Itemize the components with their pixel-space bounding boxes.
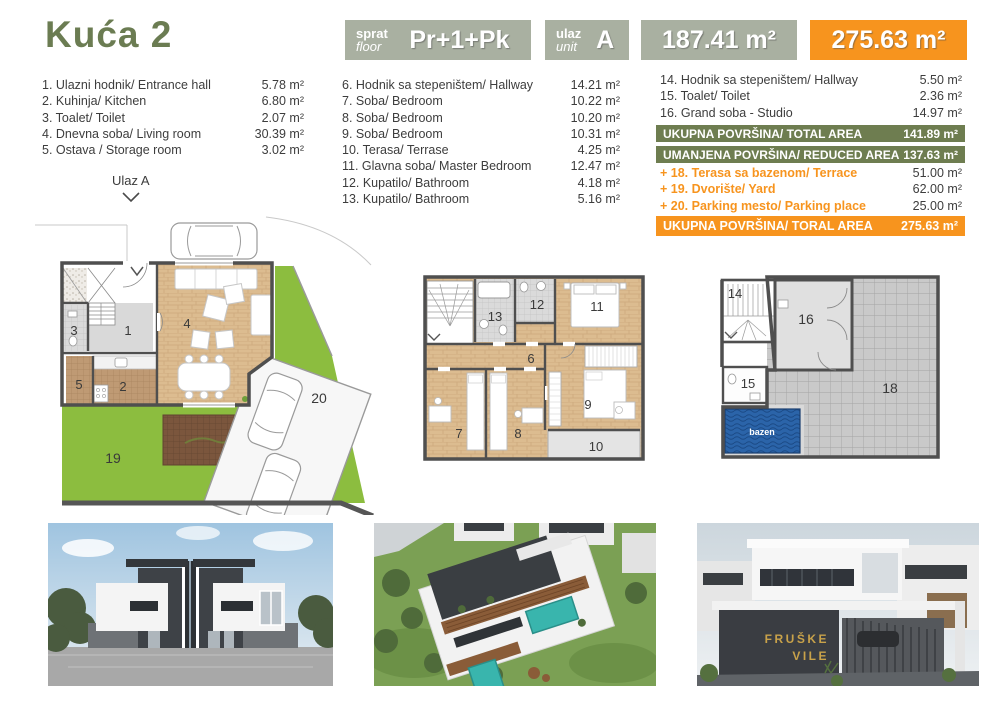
room-number: 10 — [589, 439, 603, 454]
room-area: 4.25 m² — [578, 143, 620, 157]
room-label: 2. Kuhinja/ Kitchen — [42, 94, 146, 108]
floor-box-labels: sprat floor — [345, 27, 388, 53]
extra-label: + 20. Parking mesto/ Parking place — [660, 199, 866, 213]
street-car-icon — [171, 223, 257, 259]
room-area: 2.07 m² — [262, 111, 304, 125]
room-number: 8 — [514, 426, 521, 441]
room-number: 6 — [527, 351, 534, 366]
room-area: 14.21 m² — [571, 78, 620, 92]
room-area: 4.18 m² — [578, 176, 620, 190]
room-row: 5. Ostava / Storage room3.02 m² — [42, 143, 304, 159]
sign-text-line2: VILE — [792, 649, 829, 663]
room-list-attic: 14. Hodnik sa stepeništem/ Hallway5.50 m… — [660, 73, 962, 122]
grand-total-bar-value: 275.63 m² — [901, 219, 958, 233]
pool: bazen — [721, 405, 804, 457]
room-number: 13 — [488, 309, 502, 324]
aerial-render — [374, 523, 656, 686]
room-number: 11 — [590, 299, 604, 314]
page-title: Kuća 2 — [45, 14, 172, 56]
sign-text-line1: FRUŠKE — [765, 631, 829, 646]
staircase — [427, 281, 473, 344]
room-number: 5 — [75, 377, 82, 392]
total-area-box: 275.63 m² — [810, 20, 967, 60]
room-row: 8. Soba/ Bedroom10.20 m² — [342, 111, 620, 127]
room-row: 14. Hodnik sa stepeništem/ Hallway5.50 m… — [660, 73, 962, 89]
room-label: 3. Toalet/ Toilet — [42, 111, 125, 125]
room-label: 8. Soba/ Bedroom — [342, 111, 443, 125]
total-area-bar-label: UKUPNA POVRŠINA/ TOTAL AREA — [663, 127, 862, 141]
entrance-label: Ulaz A — [112, 173, 150, 188]
room-label: 15. Toalet/ Toilet — [660, 89, 750, 103]
room-row: 10. Terasa/ Terrase4.25 m² — [342, 143, 620, 159]
extra-area: 25.00 m² — [913, 199, 962, 213]
room-area: 5.50 m² — [920, 73, 962, 87]
room-label: 10. Terasa/ Terrase — [342, 143, 449, 157]
room-label: 7. Soba/ Bedroom — [342, 94, 443, 108]
room-list-ground: 1. Ulazni hodnik/ Entrance hall5.78 m² 2… — [42, 78, 304, 159]
room-area: 12.47 m² — [571, 159, 620, 173]
photo-aerial-view — [374, 523, 656, 686]
floor-label-en: floor — [356, 40, 388, 53]
reduced-area-bar-value: 137.63 m² — [903, 148, 958, 162]
room-area: 5.16 m² — [578, 192, 620, 206]
total-area-bar: UKUPNA POVRŠINA/ TOTAL AREA 141.89 m² — [656, 125, 965, 142]
room-label: 16. Grand soba - Studio — [660, 106, 793, 120]
attic-floor-plan: bazen 14 15 16 18 — [698, 260, 996, 486]
room-area: 30.39 m² — [255, 127, 304, 141]
room-number: 14 — [728, 286, 742, 301]
room-row: 12. Kupatilo/ Bathroom4.18 m² — [342, 176, 620, 192]
extra-row: + 18. Terasa sa bazenom/ Terrace51.00 m² — [660, 166, 962, 182]
extra-areas-list: + 18. Terasa sa bazenom/ Terrace51.00 m²… — [660, 166, 962, 215]
room-row: 4. Dnevna soba/ Living room30.39 m² — [42, 127, 304, 143]
floor-value: Pr+1+Pk — [388, 26, 531, 55]
front-elevation-render — [48, 523, 333, 686]
room-label: 13. Kupatilo/ Bathroom — [342, 192, 469, 206]
photo-front-elevation — [48, 523, 333, 686]
room-area: 2.36 m² — [920, 89, 962, 103]
first-floor-plan: 13 12 11 6 7 8 9 10 — [398, 266, 670, 482]
room-row: 2. Kuhinja/ Kitchen6.80 m² — [42, 94, 304, 110]
bed-8 — [490, 373, 507, 450]
terrace-number: 18 — [882, 380, 898, 396]
room-label: 5. Ostava / Storage room — [42, 143, 182, 157]
room-number: 7 — [455, 426, 462, 441]
room-number: 15 — [741, 376, 755, 391]
extra-label: + 19. Dvorište/ Yard — [660, 182, 775, 196]
room-row: 9. Soba/ Bedroom10.31 m² — [342, 127, 620, 143]
brochure-page: Kuća 2 sprat floor Pr+1+Pk ulaz unit A 1… — [0, 0, 1000, 706]
room-label: 4. Dnevna soba/ Living room — [42, 127, 201, 141]
room-area: 10.20 m² — [571, 111, 620, 125]
total-area-value: 275.63 m² — [810, 26, 967, 55]
photo-entrance-gate: FRUŠKE VILE — [697, 523, 979, 686]
room-row: 1. Ulazni hodnik/ Entrance hall5.78 m² — [42, 78, 304, 94]
yard-number: 19 — [105, 450, 121, 466]
room-area: 14.97 m² — [913, 106, 962, 120]
extra-area: 62.00 m² — [913, 182, 962, 196]
room-label: 14. Hodnik sa stepeništem/ Hallway — [660, 73, 858, 87]
room-list-first-floor: 6. Hodnik sa stepeništem/ Hallway14.21 m… — [342, 78, 620, 208]
extra-row: + 19. Dvorište/ Yard62.00 m² — [660, 182, 962, 198]
room-label: 11. Glavna soba/ Master Bedroom — [342, 159, 531, 173]
room-row: 3. Toalet/ Toilet2.07 m² — [42, 111, 304, 127]
entrance-arrow-icon — [120, 190, 142, 204]
staircase — [88, 303, 115, 325]
unit-label-en: unit — [556, 40, 581, 53]
ground-floor-plan: 1 2 3 4 5 19 20 — [35, 213, 375, 515]
room-area: 10.22 m² — [571, 94, 620, 108]
floor-box: sprat floor Pr+1+Pk — [345, 20, 531, 60]
living-area-value: 187.41 m² — [641, 26, 797, 55]
room-area: 3.02 m² — [262, 143, 304, 157]
bed-7 — [467, 373, 484, 450]
unit-box-labels: ulaz unit — [545, 27, 581, 53]
room-number: 2 — [119, 379, 126, 394]
extra-label: + 18. Terasa sa bazenom/ Terrace — [660, 166, 857, 180]
room-label: 12. Kupatilo/ Bathroom — [342, 176, 469, 190]
room-label: 1. Ulazni hodnik/ Entrance hall — [42, 78, 211, 92]
room-number: 3 — [70, 323, 77, 338]
room-row: 6. Hodnik sa stepeništem/ Hallway14.21 m… — [342, 78, 620, 94]
room-row: 13. Kupatilo/ Bathroom5.16 m² — [342, 192, 620, 208]
reduced-area-bar: UMANJENA POVRŠINA/ REDUCED AREA 137.63 m… — [656, 146, 965, 163]
room-row: 7. Soba/ Bedroom10.22 m² — [342, 94, 620, 110]
room-number: 16 — [798, 311, 814, 327]
room-number: 1 — [124, 323, 131, 338]
room-row: 11. Glavna soba/ Master Bedroom12.47 m² — [342, 159, 620, 175]
parking-number: 20 — [311, 390, 327, 406]
pool-label: bazen — [749, 427, 775, 437]
total-area-bar-value: 141.89 m² — [903, 127, 958, 141]
extra-row: + 20. Parking mesto/ Parking place25.00 … — [660, 199, 962, 215]
entrance-render: FRUŠKE VILE — [697, 523, 979, 686]
living-area-box: 187.41 m² — [641, 20, 797, 60]
room-number: 9 — [584, 397, 591, 412]
reduced-area-bar-label: UMANJENA POVRŠINA/ REDUCED AREA — [663, 148, 899, 162]
room-area: 10.31 m² — [571, 127, 620, 141]
room-area: 5.78 m² — [262, 78, 304, 92]
room-label: 9. Soba/ Bedroom — [342, 127, 443, 141]
grand-total-bar: UKUPNA POVRŠINA/ TORAL AREA 275.63 m² — [656, 216, 965, 236]
unit-value: A — [581, 26, 629, 55]
unit-box: ulaz unit A — [545, 20, 629, 60]
extra-area: 51.00 m² — [913, 166, 962, 180]
room-area: 6.80 m² — [262, 94, 304, 108]
room-label: 6. Hodnik sa stepeništem/ Hallway — [342, 78, 533, 92]
grand-total-bar-label: UKUPNA POVRŠINA/ TORAL AREA — [663, 219, 873, 233]
room-number: 4 — [183, 316, 190, 331]
room-row: 15. Toalet/ Toilet2.36 m² — [660, 89, 962, 105]
room-number: 12 — [530, 297, 544, 312]
room-row: 16. Grand soba - Studio14.97 m² — [660, 106, 962, 122]
